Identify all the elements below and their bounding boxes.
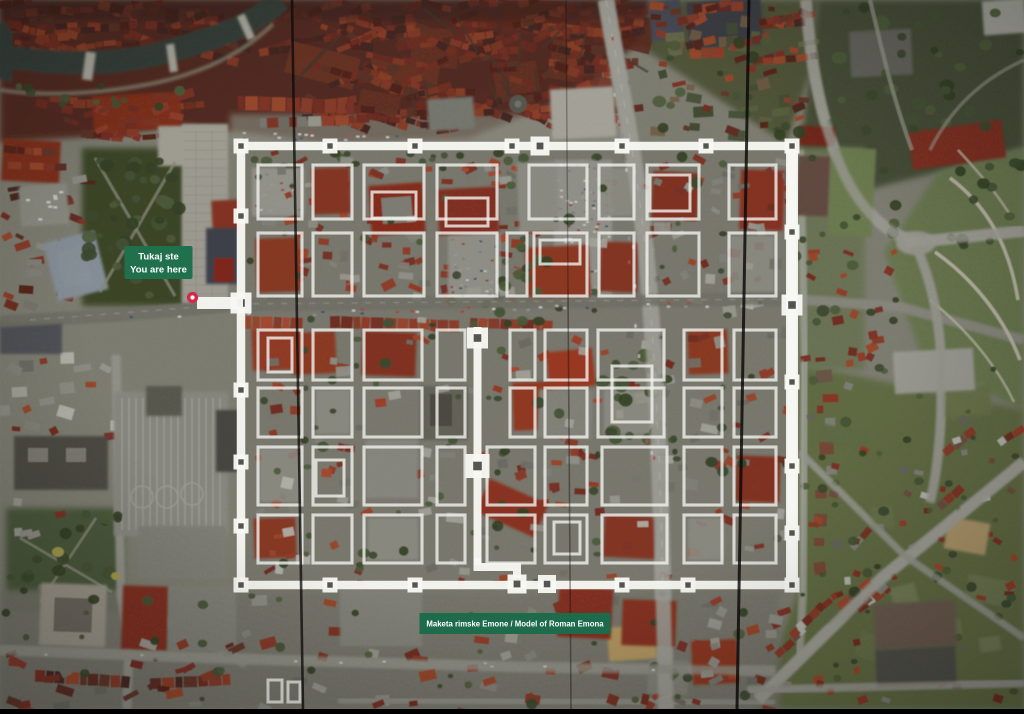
svg-text:Tukaj ste: Tukaj ste xyxy=(138,252,178,263)
svg-text:Maketa rimske Emone / Model of: Maketa rimske Emone / Model of Roman Emo… xyxy=(426,620,604,629)
svg-text:You are here: You are here xyxy=(130,265,187,276)
